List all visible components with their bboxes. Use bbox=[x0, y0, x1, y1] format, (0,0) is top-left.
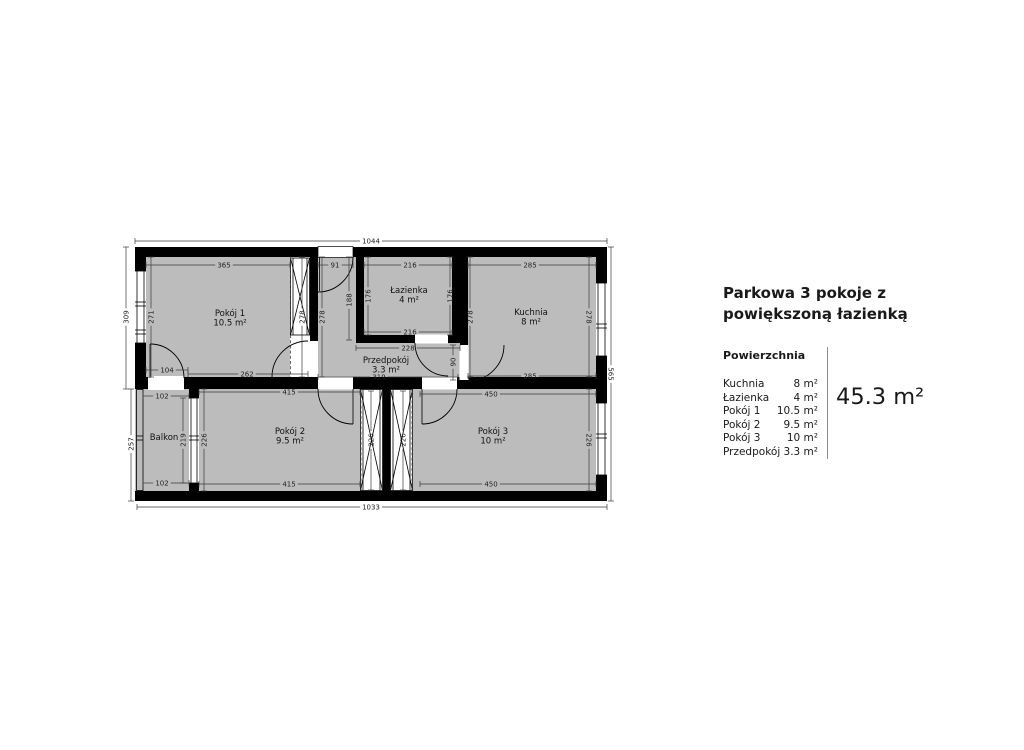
window-balkon-door bbox=[189, 398, 199, 483]
svg-text:278: 278 bbox=[466, 310, 474, 323]
area-row-value: 3.3 m² bbox=[784, 446, 818, 460]
svg-text:278: 278 bbox=[318, 310, 326, 323]
svg-text:565: 565 bbox=[607, 367, 615, 380]
svg-text:278: 278 bbox=[298, 310, 306, 323]
vertical-divider bbox=[827, 347, 828, 459]
area-section-label: Powierzchnia bbox=[723, 349, 928, 362]
window-kitchen-right bbox=[596, 283, 607, 356]
svg-text:450: 450 bbox=[484, 390, 497, 398]
svg-text:450: 450 bbox=[484, 480, 497, 488]
dimension: 1044 bbox=[135, 237, 607, 245]
svg-text:1033: 1033 bbox=[362, 503, 380, 511]
area-row: Przedpokój 3.3 m² bbox=[723, 446, 818, 460]
svg-text:176: 176 bbox=[446, 289, 454, 303]
svg-text:176: 176 bbox=[364, 289, 372, 303]
svg-text:3.3 m²: 3.3 m² bbox=[372, 366, 400, 376]
plan-title: Parkowa 3 pokoje z powiększoną łazienką bbox=[723, 283, 928, 325]
wall-wardrobe-mid bbox=[383, 389, 390, 491]
entry-opening bbox=[318, 247, 353, 258]
area-row-value: 8 m² bbox=[794, 378, 818, 392]
area-row-name: Przedpokój bbox=[723, 446, 780, 460]
svg-text:271: 271 bbox=[147, 310, 155, 323]
pokoj3-door-opening bbox=[422, 377, 457, 390]
area-row-name: Pokój 2 bbox=[723, 419, 760, 433]
svg-text:Łazienka: Łazienka bbox=[389, 286, 427, 296]
svg-text:10 m²: 10 m² bbox=[480, 437, 505, 447]
svg-text:Przedpokój: Przedpokój bbox=[363, 355, 409, 366]
dimension: 257 bbox=[127, 389, 135, 501]
svg-text:219: 219 bbox=[179, 433, 187, 446]
svg-text:Kuchnia: Kuchnia bbox=[514, 308, 548, 318]
svg-text:Pokój 3: Pokój 3 bbox=[478, 426, 508, 437]
dimension: 565 bbox=[607, 247, 615, 501]
svg-text:9.5 m²: 9.5 m² bbox=[276, 437, 304, 447]
area-row: Łazienka 4 m² bbox=[723, 392, 818, 406]
room-label: Pokój 310 m² bbox=[478, 426, 508, 447]
svg-text:102: 102 bbox=[155, 479, 168, 487]
svg-text:226: 226 bbox=[367, 433, 375, 447]
svg-text:309: 309 bbox=[122, 310, 130, 323]
window-pokoj3-right bbox=[596, 403, 607, 475]
svg-text:285: 285 bbox=[523, 372, 536, 380]
area-row-name: Łazienka bbox=[723, 392, 769, 406]
svg-text:216: 216 bbox=[403, 261, 417, 269]
area-row: Kuchnia 8 m² bbox=[723, 378, 818, 392]
svg-text:90: 90 bbox=[449, 358, 457, 367]
wall-top bbox=[135, 247, 607, 257]
svg-text:8 m²: 8 m² bbox=[521, 318, 541, 328]
page: 1044365912162852162281042623192851024154… bbox=[0, 0, 1024, 750]
svg-text:226: 226 bbox=[200, 433, 208, 447]
area-row: Pokój 1 10.5 m² bbox=[723, 405, 818, 419]
area-table: Kuchnia 8 m² Łazienka 4 m² Pokój 1 10.5 … bbox=[723, 378, 818, 460]
svg-text:188: 188 bbox=[345, 293, 353, 306]
svg-text:278: 278 bbox=[585, 310, 593, 323]
total-area: 45.3 m² bbox=[836, 384, 924, 410]
area-row: Pokój 2 9.5 m² bbox=[723, 419, 818, 433]
area-row-name: Pokój 3 bbox=[723, 432, 760, 446]
pokoj2-door-opening bbox=[318, 377, 353, 390]
room-label: Pokój 110.5 m² bbox=[213, 308, 246, 329]
svg-text:10.5 m²: 10.5 m² bbox=[213, 319, 246, 329]
wall-bath-left bbox=[356, 247, 364, 343]
area-row: Pokój 3 10 m² bbox=[723, 432, 818, 446]
room-label: Pokój 29.5 m² bbox=[275, 426, 305, 447]
area-row-value: 10 m² bbox=[787, 432, 818, 446]
svg-text:Pokój 1: Pokój 1 bbox=[215, 308, 245, 319]
svg-text:257: 257 bbox=[127, 437, 135, 450]
svg-text:104: 104 bbox=[160, 366, 174, 374]
area-row-name: Pokój 1 bbox=[723, 405, 760, 419]
svg-text:216: 216 bbox=[403, 328, 417, 336]
window-pokoj1-left bbox=[135, 271, 146, 343]
bath-door-opening bbox=[415, 335, 448, 344]
svg-text:285: 285 bbox=[523, 261, 536, 269]
wall-bottom bbox=[135, 491, 607, 501]
svg-text:Balkon: Balkon bbox=[150, 433, 179, 443]
svg-text:226: 226 bbox=[585, 433, 593, 447]
dimension: 309 bbox=[122, 247, 130, 389]
area-row-name: Kuchnia bbox=[723, 378, 764, 392]
svg-text:415: 415 bbox=[282, 480, 295, 488]
svg-text:415: 415 bbox=[282, 388, 295, 396]
svg-text:262: 262 bbox=[240, 370, 253, 378]
svg-text:Pokój 2: Pokój 2 bbox=[275, 426, 305, 437]
area-row-value: 9.5 m² bbox=[784, 419, 818, 433]
svg-text:91: 91 bbox=[331, 261, 340, 269]
svg-text:102: 102 bbox=[155, 392, 168, 400]
balcony-door-opening bbox=[148, 376, 184, 390]
info-panel: Parkowa 3 pokoje z powiększoną łazienką … bbox=[723, 283, 928, 460]
area-row-value: 4 m² bbox=[794, 392, 818, 406]
kitchen-door-opening bbox=[460, 345, 469, 380]
room-label: Balkon bbox=[150, 433, 179, 443]
dimension: 1033 bbox=[137, 503, 607, 511]
svg-text:1044: 1044 bbox=[362, 237, 380, 245]
svg-text:226: 226 bbox=[399, 433, 407, 447]
svg-text:365: 365 bbox=[217, 261, 230, 269]
svg-text:228: 228 bbox=[401, 344, 414, 352]
area-row-value: 10.5 m² bbox=[777, 405, 818, 419]
svg-text:4 m²: 4 m² bbox=[399, 296, 419, 306]
